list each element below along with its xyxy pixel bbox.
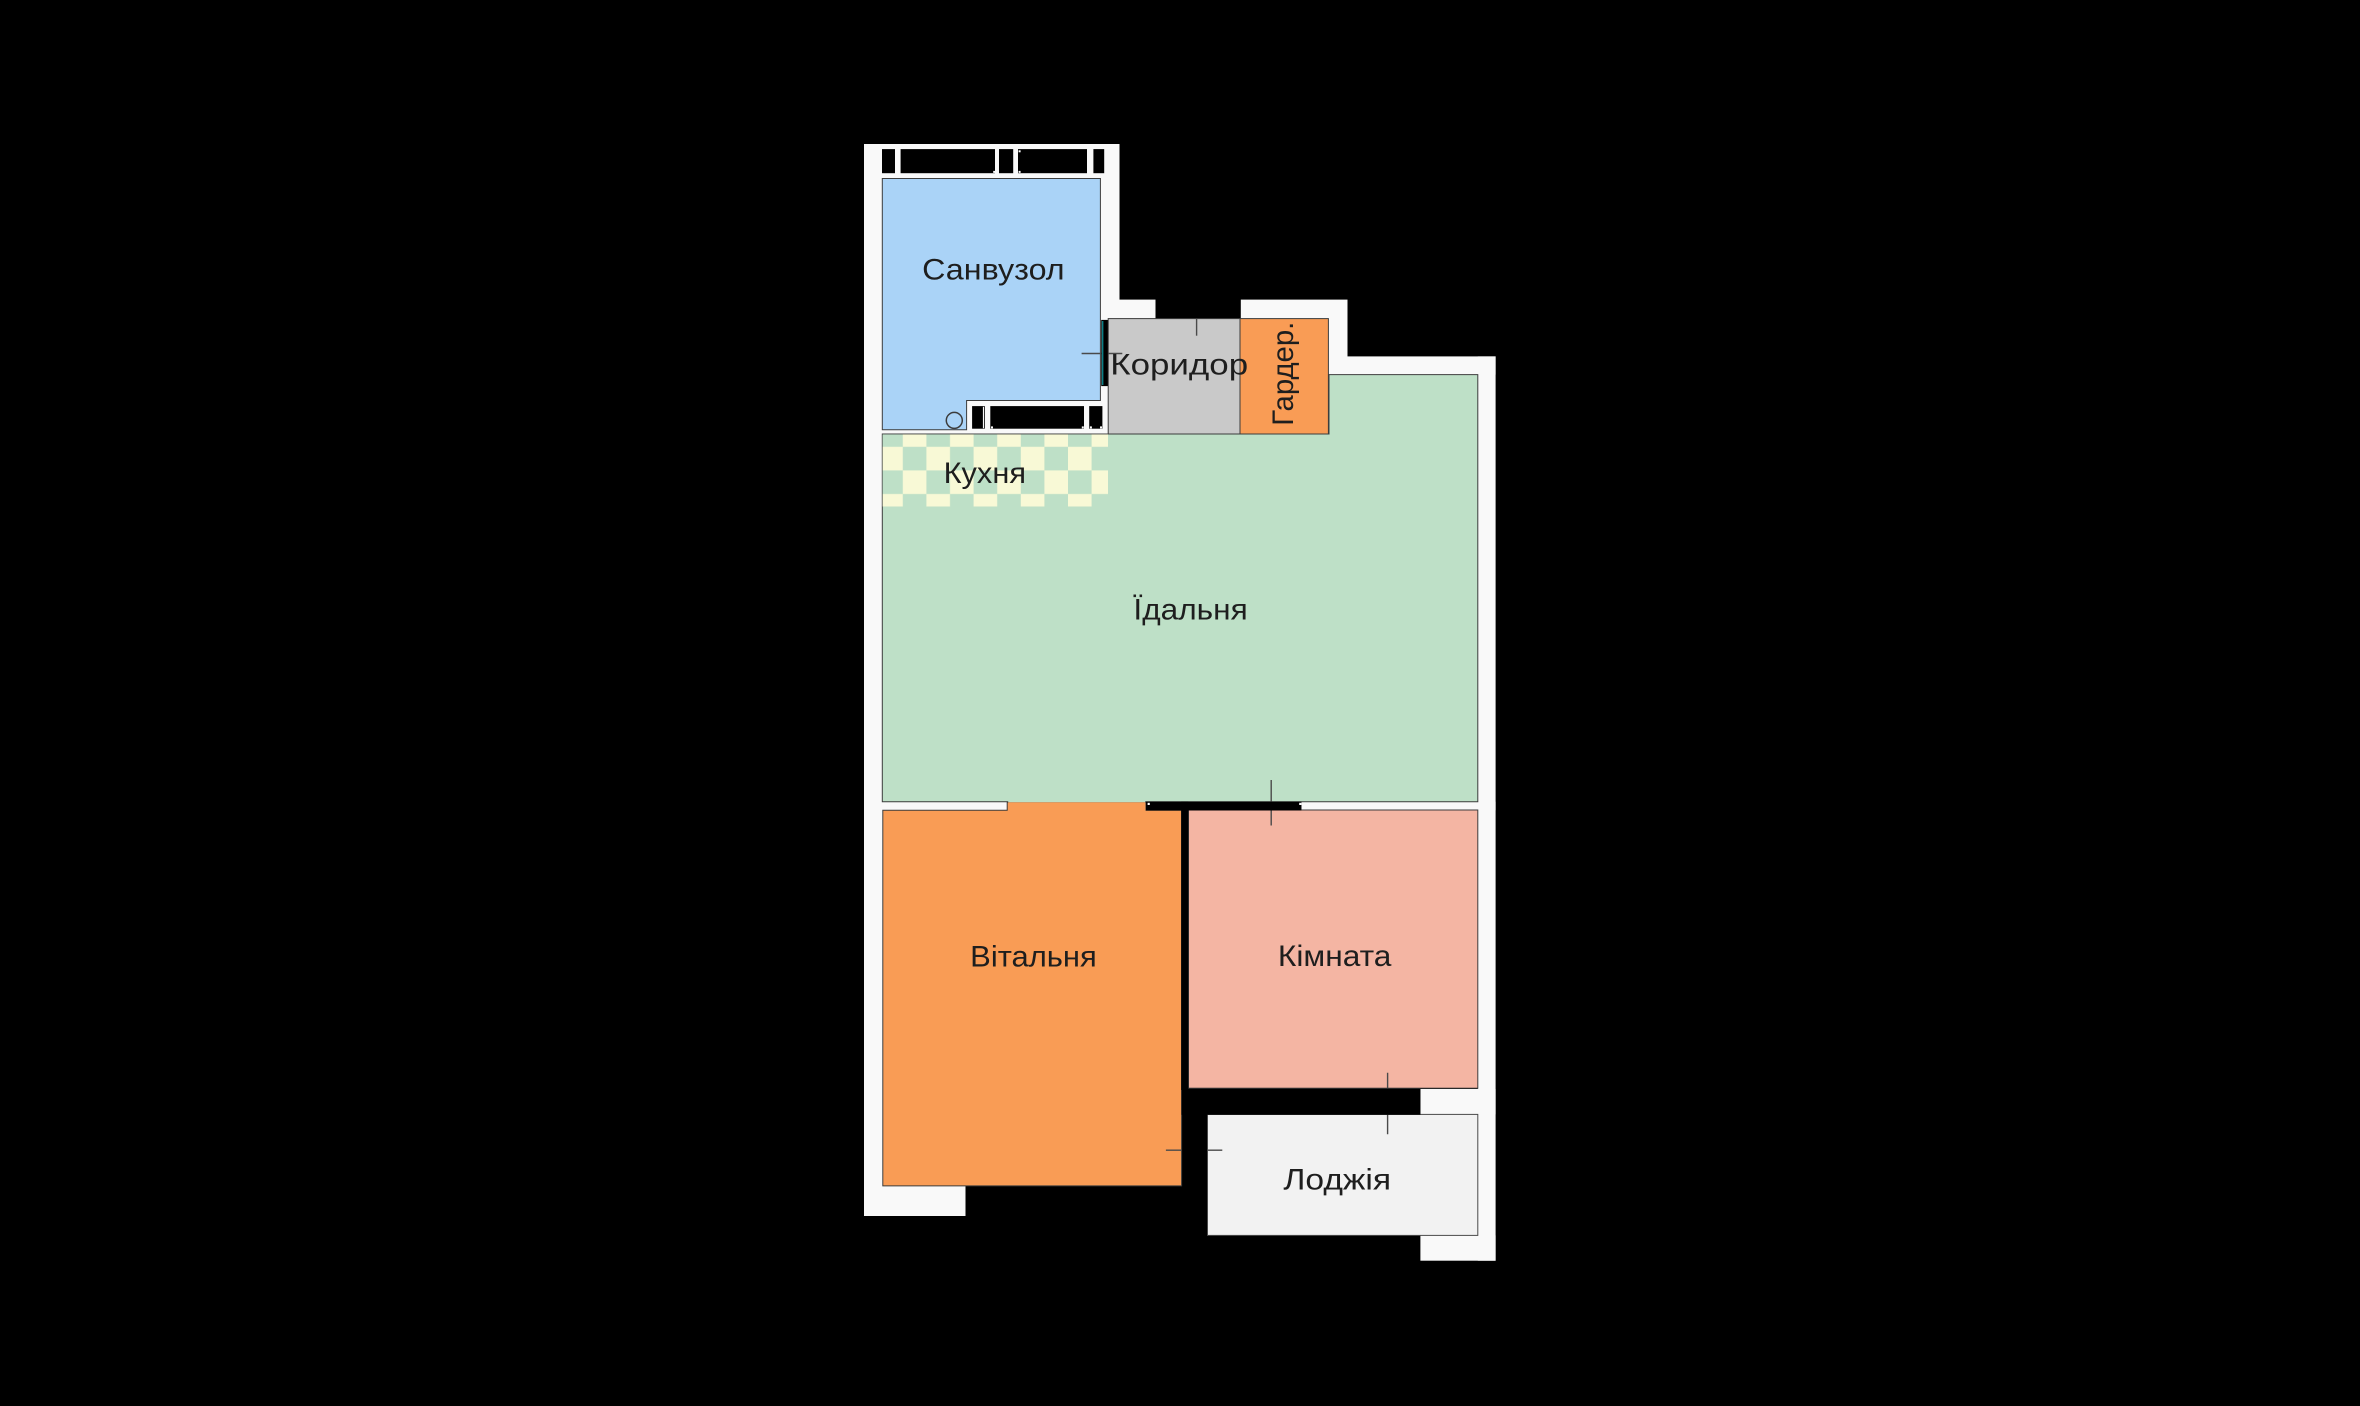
svg-text:Вітальня: Вітальня <box>970 941 1097 974</box>
svg-text:Коридор: Коридор <box>1110 349 1248 382</box>
svg-text:Кухня: Кухня <box>944 457 1026 490</box>
svg-text:Їдальня: Їдальня <box>1133 594 1247 627</box>
svg-text:Кімната: Кімната <box>1278 940 1392 973</box>
svg-text:Лоджія: Лоджія <box>1283 1163 1391 1196</box>
svg-text:Гардер.: Гардер. <box>1267 322 1300 426</box>
svg-text:Санвузол: Санвузол <box>922 253 1065 286</box>
